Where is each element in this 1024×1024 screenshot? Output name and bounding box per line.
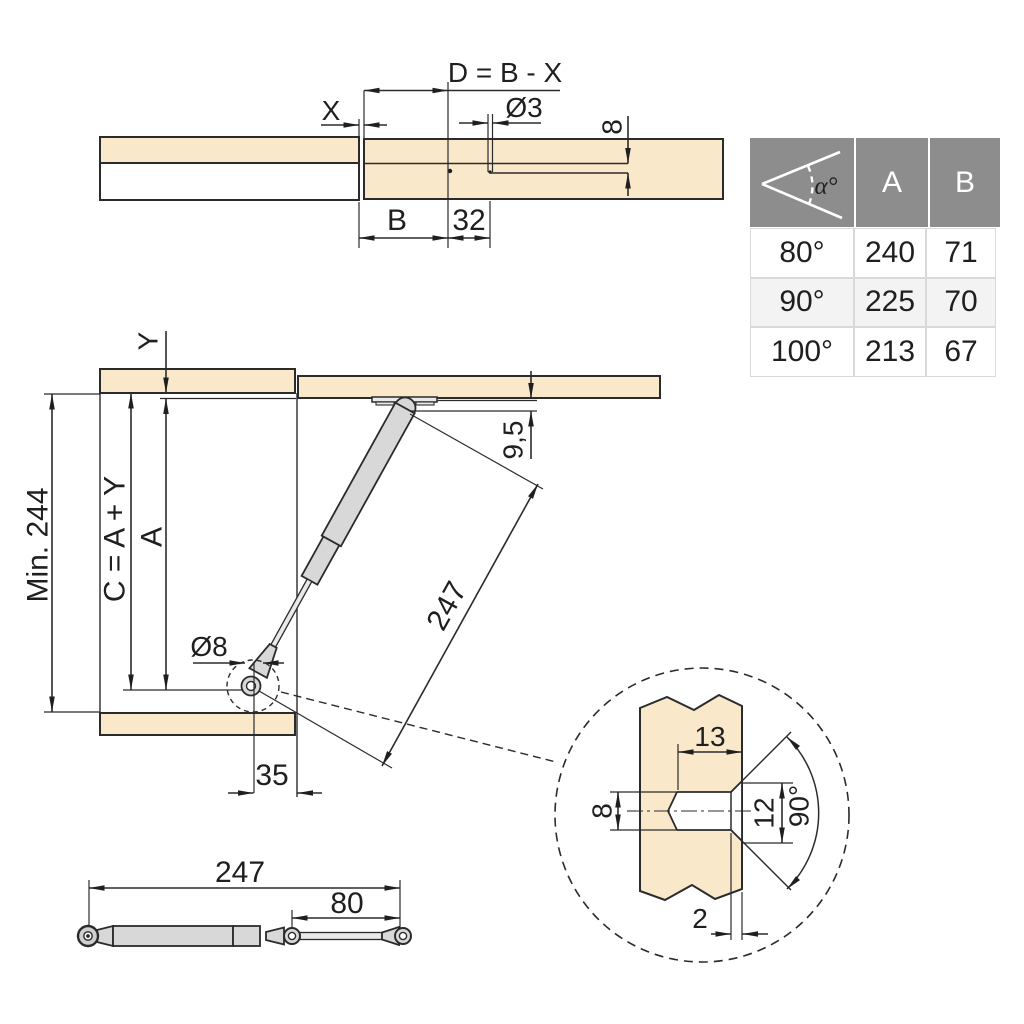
- dim-x-label: X: [322, 95, 341, 126]
- dim-a-label: A: [136, 527, 169, 547]
- header-angle-cell: α°: [750, 138, 854, 227]
- dim-y-label: Y: [133, 331, 164, 350]
- row-80-b: 71: [926, 228, 996, 278]
- bracket-tab-left: [376, 402, 394, 405]
- dim-side-offset-label: 35: [255, 759, 288, 792]
- strut-rod-shaft: [300, 933, 382, 940]
- dim-strut-length-label: 247: [420, 576, 473, 636]
- opening-angle-icon: α°: [752, 140, 852, 226]
- dim-strut-length: [382, 484, 538, 766]
- row-90-angle: 90°: [750, 278, 854, 328]
- row-80-a: 240: [854, 228, 926, 278]
- row-90-a: 225: [854, 278, 926, 328]
- door-top-layer: [100, 137, 359, 163]
- spec-table-body: 80° 240 71 90° 225 70 100° 213 67: [750, 228, 998, 377]
- dim-socket-dia-label: Ø8: [190, 631, 227, 662]
- dim-cs-depth-label: 2: [692, 903, 708, 934]
- strut-cylinder-cap: [233, 926, 260, 946]
- dim-min-height-label: Min. 244: [22, 487, 55, 602]
- strut-right-eyelet-hole: [399, 932, 406, 939]
- row-80-angle: 80°: [750, 228, 854, 278]
- row-100-b: 67: [926, 327, 996, 377]
- header-angle-label: α°: [814, 173, 837, 200]
- door-edge-section-drawing: D = B - X X Ø3 8 B 32: [100, 57, 723, 248]
- open-door-panel: [298, 376, 660, 398]
- angle-spec-table: α° A B 80° 240 71 90° 225 70 100° 213 67: [750, 138, 998, 377]
- header-b-cell: B: [930, 138, 1000, 227]
- technical-drawing-page: D = B - X X Ø3 8 B 32: [0, 0, 1024, 1024]
- strut-mid-cone: [266, 928, 284, 945]
- strut-cylinder-body: [113, 926, 233, 946]
- pilot-hole-tip: [488, 170, 491, 173]
- dim-pilot-dia-label: Ø3: [505, 92, 542, 123]
- panel-section: [364, 139, 723, 199]
- cabinet-bottom-shelf: [100, 713, 295, 735]
- dim-pivot-drop-label: 9,5: [498, 421, 529, 460]
- strut-cylinder: [322, 403, 415, 547]
- dim-b-label: B: [387, 204, 407, 237]
- strut-collar: [302, 537, 340, 585]
- dim-cs-dia-label: 12: [749, 797, 780, 828]
- hole-detail-view: 90° 13 8 12 2: [555, 668, 849, 962]
- dim-hole-depth-label: 13: [694, 721, 725, 752]
- dim-32-label: 32: [452, 204, 485, 237]
- header-a-cell: A: [856, 138, 928, 227]
- dim-hole-depth8-label: 8: [597, 119, 628, 135]
- dim-rod-length-label: 80: [330, 887, 363, 920]
- dim-countersink-angle-label: 90°: [784, 785, 815, 827]
- gas-strut: [242, 398, 416, 696]
- row-100-angle: 100°: [750, 327, 854, 377]
- door-body-layer: [100, 163, 359, 200]
- row-90-b: 70: [926, 278, 996, 328]
- dim-hole-dia-label: 8: [587, 803, 618, 819]
- strut-left-eyelet-pin: [86, 934, 90, 938]
- cabinet-strut-diagram: Min. 244 Y A C = A + Y: [22, 331, 661, 797]
- dim-c-label: C = A + Y: [99, 476, 132, 602]
- spec-table-header: α° A B: [750, 138, 998, 227]
- row-100-a: 213: [854, 327, 926, 377]
- dim-d-label: D = B - X: [448, 57, 563, 88]
- strut-elevation-drawing: 247 80: [78, 856, 411, 946]
- bracket-tab-right: [416, 402, 434, 405]
- cabinet-top-panel: [100, 369, 295, 393]
- strut-body-horizontal: [78, 926, 411, 946]
- strut-piston-rod: [271, 579, 312, 647]
- dim-strut-total-label: 247: [215, 856, 265, 889]
- strut-left-taper: [97, 926, 113, 946]
- strut-mid-eyelet-hole: [288, 932, 295, 939]
